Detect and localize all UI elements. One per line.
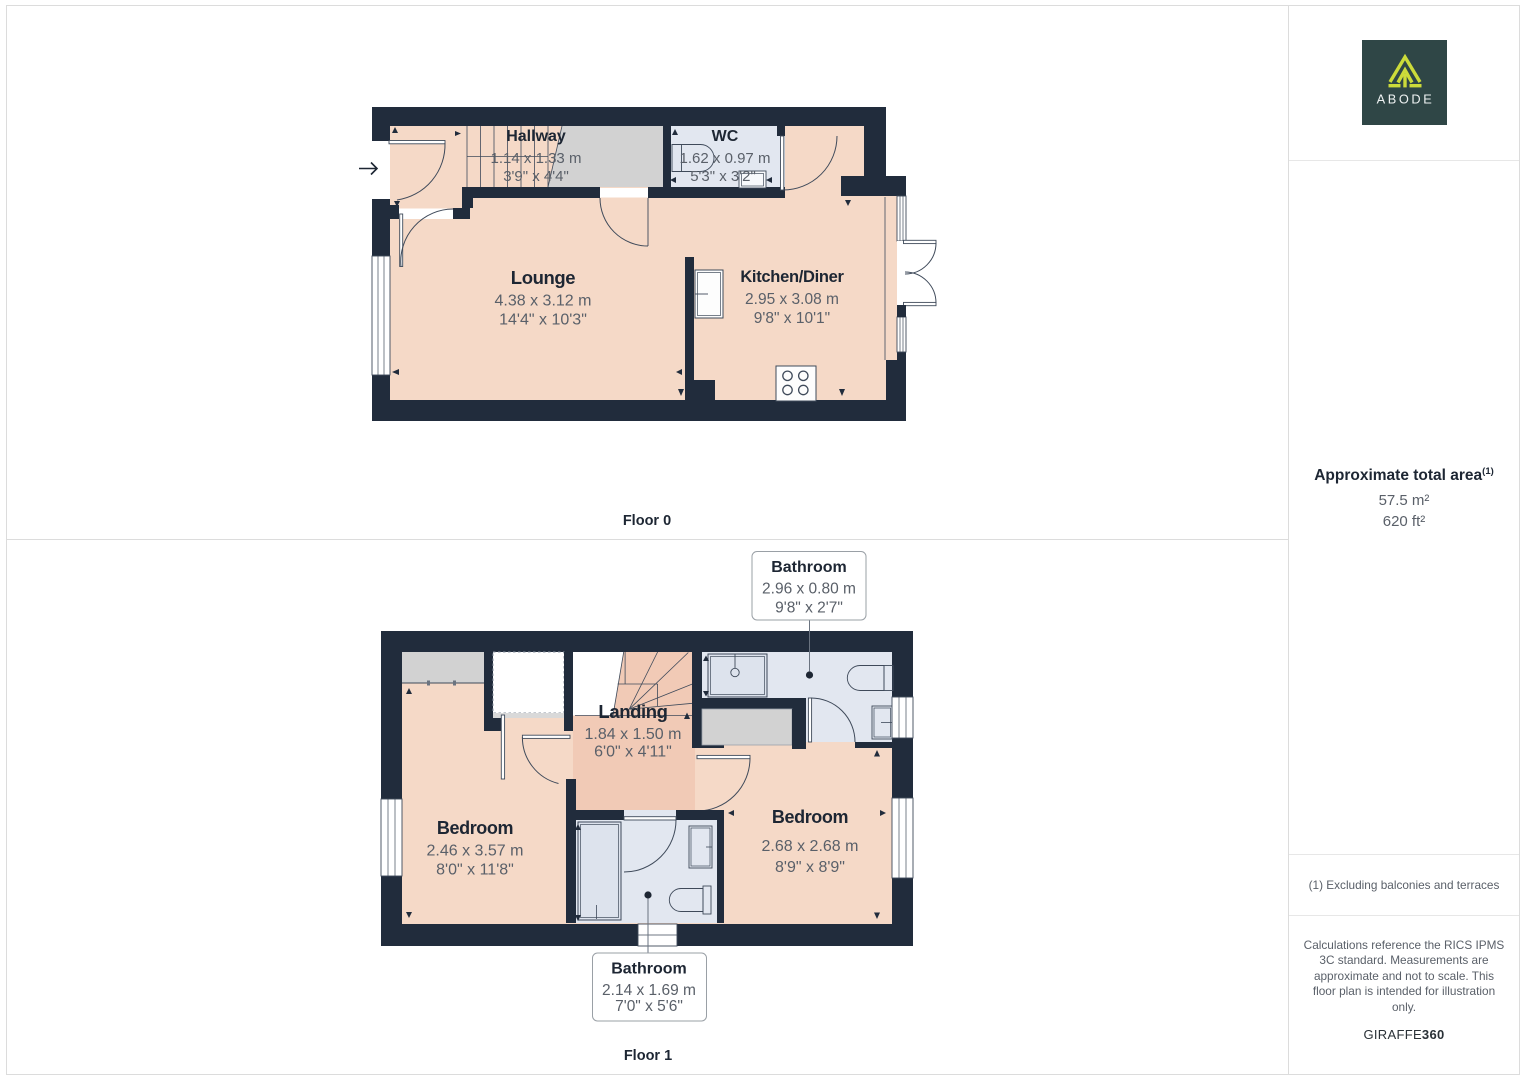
svg-text:2.14 x 1.69 m: 2.14 x 1.69 m	[602, 982, 696, 999]
svg-text:6'0" x 4'11": 6'0" x 4'11"	[594, 744, 672, 761]
svg-text:Floor 0: Floor 0	[623, 513, 671, 529]
svg-text:ABODE: ABODE	[1377, 92, 1435, 107]
svg-text:Bathroom: Bathroom	[771, 559, 847, 576]
svg-text:1.84 x 1.50 m: 1.84 x 1.50 m	[585, 726, 682, 743]
svg-text:8'9" x 8'9": 8'9" x 8'9"	[775, 859, 845, 876]
svg-text:Hallway: Hallway	[506, 128, 566, 145]
svg-text:Bathroom: Bathroom	[611, 961, 687, 978]
svg-text:Lounge: Lounge	[511, 267, 576, 288]
svg-text:1.14 x 1.33 m: 1.14 x 1.33 m	[491, 150, 582, 167]
svg-text:Floor 1: Floor 1	[624, 1048, 672, 1064]
svg-text:Bedroom: Bedroom	[437, 818, 513, 838]
svg-text:7'0" x 5'6": 7'0" x 5'6"	[615, 998, 683, 1015]
svg-text:2.46 x 3.57 m: 2.46 x 3.57 m	[427, 843, 524, 860]
svg-text:Landing: Landing	[598, 701, 667, 722]
svg-text:2.96 x 0.80 m: 2.96 x 0.80 m	[762, 581, 856, 598]
svg-text:Kitchen/Diner: Kitchen/Diner	[740, 268, 844, 286]
svg-text:WC: WC	[712, 128, 739, 145]
svg-text:9'8" x 2'7": 9'8" x 2'7"	[775, 600, 843, 617]
svg-text:4.38 x 3.12 m: 4.38 x 3.12 m	[495, 293, 592, 310]
svg-text:2.68 x 2.68 m: 2.68 x 2.68 m	[762, 838, 859, 855]
svg-text:3'9" x 4'4": 3'9" x 4'4"	[503, 168, 569, 185]
svg-text:Bedroom: Bedroom	[772, 807, 848, 827]
svg-text:8'0" x 11'8": 8'0" x 11'8"	[436, 862, 514, 879]
svg-text:9'8" x 10'1": 9'8" x 10'1"	[754, 310, 830, 327]
svg-text:1.62 x 0.97 m: 1.62 x 0.97 m	[680, 150, 771, 167]
svg-text:2.95 x 3.08 m: 2.95 x 3.08 m	[745, 291, 839, 308]
svg-text:14'4" x 10'3": 14'4" x 10'3"	[499, 312, 587, 329]
svg-text:5'3" x 3'2": 5'3" x 3'2"	[690, 168, 756, 185]
